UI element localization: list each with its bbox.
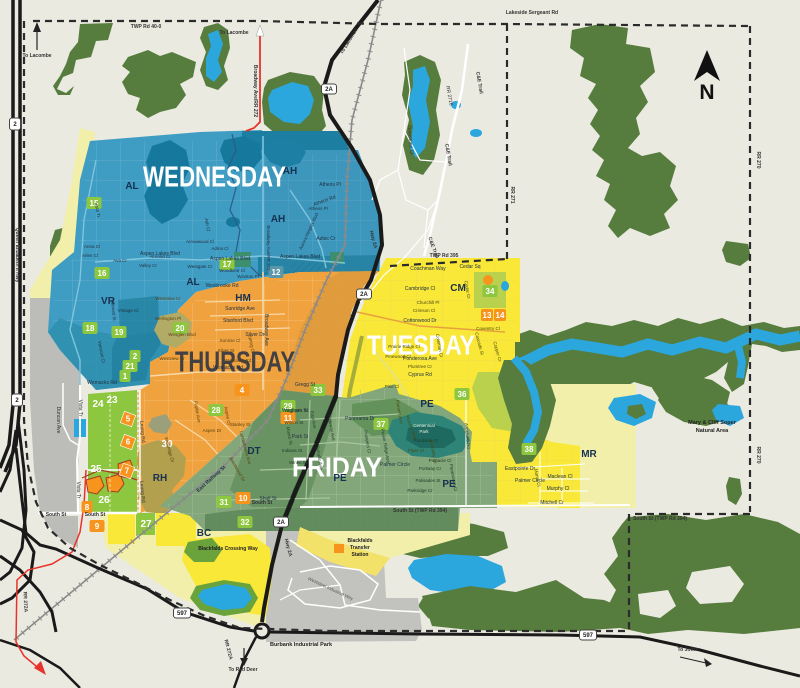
svg-text:RR 272A: RR 272A [21,592,28,613]
svg-text:Churchill Pl: Churchill Pl [417,300,440,305]
svg-text:Maclean Cl: Maclean Cl [547,474,572,480]
svg-text:Centennial: Centennial [413,423,435,428]
svg-text:Pinewood Cl: Pinewood Cl [385,354,410,359]
svg-text:Vista Tr: Vista Tr [77,400,83,417]
svg-text:Valley Cr: Valley Cr [139,263,157,268]
svg-text:Vista Tr: Vista Tr [75,482,81,499]
svg-text:Coventry Cl: Coventry Cl [476,326,500,331]
svg-text:HM: HM [235,293,251,304]
svg-text:Aspen Lakes Blvd: Aspen Lakes Blvd [210,256,250,262]
svg-text:South St (TWP Rd 394): South St (TWP Rd 394) [393,508,447,514]
svg-text:Coachman Way: Coachman Way [410,266,446,272]
svg-text:597: 597 [583,633,594,639]
svg-text:19: 19 [115,328,124,337]
svg-text:18: 18 [86,324,95,333]
svg-text:Crimson Cl: Crimson Cl [413,308,435,313]
svg-text:38: 38 [525,445,534,454]
svg-text:Duncan Ave: Duncan Ave [55,407,61,434]
svg-text:36: 36 [458,390,467,399]
svg-text:24: 24 [92,399,104,410]
svg-text:To Red Deer: To Red Deer [228,667,257,673]
svg-text:Winko St: Winko St [289,460,308,465]
svg-text:Aspen Dr: Aspen Dr [203,428,222,433]
svg-text:Mitchell Cr: Mitchell Cr [540,500,564,506]
svg-text:Womacks Rd: Womacks Rd [213,365,243,371]
svg-text:PE: PE [420,399,434,410]
svg-text:Womacks Rd: Womacks Rd [225,358,252,363]
svg-text:Pinnacle Cl: Pinnacle Cl [429,458,452,463]
svg-text:14: 14 [496,311,505,320]
svg-text:597: 597 [177,611,188,617]
svg-text:Adina Cl: Adina Cl [211,246,228,251]
svg-text:Cottonwood Dr: Cottonwood Dr [403,318,437,324]
svg-text:N: N [699,81,714,104]
svg-text:Parkridge Cr: Parkridge Cr [407,488,433,493]
svg-text:32: 32 [241,518,250,527]
svg-text:Park: Park [419,429,429,434]
svg-text:Wesglen Blvd: Wesglen Blvd [168,332,196,337]
svg-text:RH: RH [153,473,167,484]
svg-text:Plumtree Cr: Plumtree Cr [408,364,433,369]
svg-text:Broadway Ave/RR 272: Broadway Ave/RR 272 [266,225,271,271]
svg-text:28: 28 [212,406,221,415]
svg-text:TWP Rd 40-0: TWP Rd 40-0 [131,24,162,30]
svg-text:Silver St: Silver St [218,348,236,353]
svg-text:34: 34 [486,287,495,296]
svg-text:1: 1 [123,372,128,381]
svg-text:23: 23 [106,395,118,406]
svg-text:South St (TWP Rd 394): South St (TWP Rd 394) [633,516,687,522]
svg-text:Eastpointe Dr: Eastpointe Dr [505,466,536,472]
svg-text:12: 12 [272,268,281,277]
svg-text:Athens Pl: Athens Pl [308,206,327,211]
svg-text:10: 10 [239,494,248,503]
svg-text:16: 16 [98,269,107,278]
svg-text:RR 271: RR 271 [509,187,515,204]
svg-text:5: 5 [126,415,131,424]
svg-text:2A: 2A [360,292,368,298]
svg-text:RR 270: RR 270 [755,447,761,464]
svg-text:6: 6 [126,438,131,447]
svg-text:Aspen Lakes Blvd: Aspen Lakes Blvd [280,254,320,260]
svg-text:8: 8 [85,503,90,512]
svg-text:Prairie Ridge Cl: Prairie Ridge Cl [388,344,420,349]
svg-text:Woodbine Cl: Woodbine Cl [219,268,245,273]
svg-text:Wellington Pl: Wellington Pl [155,316,181,321]
svg-text:PE: PE [333,473,347,484]
svg-text:Queen Elizabeth II Hwy: Queen Elizabeth II Hwy [14,228,20,283]
svg-text:Blackfalds: Blackfalds [347,538,372,544]
svg-text:AH: AH [283,166,297,177]
svg-text:AH: AH [271,214,285,225]
svg-text:Shull St: Shull St [259,496,277,502]
svg-text:Pine Cl: Pine Cl [385,384,400,389]
svg-text:Transfer: Transfer [350,545,370,551]
svg-text:South St: South St [85,512,106,518]
svg-text:2: 2 [133,352,138,361]
svg-text:Sunridge Ave: Sunridge Ave [225,306,255,312]
svg-text:South St: South St [46,512,67,518]
svg-text:Almond Cr: Almond Cr [149,254,171,259]
svg-text:Wilson St: Wilson St [284,420,304,425]
svg-text:4: 4 [240,386,245,395]
svg-text:2A: 2A [277,520,285,526]
svg-text:Park St: Park St [292,434,309,440]
svg-text:Arrowwood Cl: Arrowwood Cl [186,239,214,244]
svg-text:Stanley St: Stanley St [230,422,251,427]
svg-text:Womacks Rd: Womacks Rd [87,380,117,386]
svg-text:MR: MR [581,449,597,460]
svg-text:CM: CM [450,283,466,294]
svg-text:21: 21 [126,362,135,371]
svg-text:Vintage Cl: Vintage Cl [118,308,139,313]
svg-text:Blackfalds Crossing Way: Blackfalds Crossing Way [198,546,258,552]
svg-text:Broadway Ave/RR 272: Broadway Ave/RR 272 [252,65,258,118]
svg-text:Anna Cl: Anna Cl [84,244,100,249]
svg-text:Sunrise Cl: Sunrise Cl [220,338,241,343]
svg-text:Cyprus Rd: Cyprus Rd [408,372,432,378]
svg-text:27: 27 [140,519,152,530]
svg-text:Cambridge Cl: Cambridge Cl [405,286,436,292]
svg-text:Station: Station [352,552,369,558]
svg-text:Wesbrooke Rd: Wesbrooke Rd [206,283,239,289]
svg-text:AL: AL [186,277,199,288]
svg-text:Lakeside Sergeant Rd: Lakeside Sergeant Rd [506,10,558,16]
svg-text:25: 25 [90,464,102,475]
svg-text:Westview Cr: Westview Cr [155,296,181,301]
svg-text:31: 31 [220,498,229,507]
svg-text:9: 9 [95,522,100,531]
svg-text:Stanford Blvd: Stanford Blvd [223,318,253,324]
svg-text:Athens Pl: Athens Pl [319,182,340,188]
svg-text:Gregg St: Gregg St [295,382,316,388]
svg-text:Cedar Sq: Cedar Sq [459,264,480,270]
svg-text:Portway Cr: Portway Cr [419,466,442,471]
svg-text:Westview Cr: Westview Cr [159,356,185,361]
svg-text:Murphy Cl: Murphy Cl [547,486,570,492]
svg-text:7: 7 [125,467,130,476]
svg-text:Broadway Ave: Broadway Ave [263,314,269,346]
svg-text:To Lacombe: To Lacombe [219,30,248,36]
svg-text:Piper Cl: Piper Cl [408,448,424,453]
svg-text:Palisades St: Palisades St [415,478,441,483]
svg-text:Winston Pl: Winston Pl [237,274,259,279]
svg-text:RR 270: RR 270 [755,152,761,169]
svg-text:26: 26 [98,495,110,506]
svg-text:13: 13 [483,311,492,320]
svg-text:Mary & Cliff Soper: Mary & Cliff Soper [688,420,737,426]
svg-text:Arlen Cl: Arlen Cl [82,253,98,258]
svg-text:To Lacombe: To Lacombe [22,53,51,59]
svg-text:Aztec Cr: Aztec Cr [316,236,336,242]
svg-text:Panorama Dr: Panorama Dr [345,416,375,422]
svg-text:To Joffre: To Joffre [677,647,698,653]
svg-text:WEDNESDAY: WEDNESDAY [143,162,286,194]
svg-text:BC: BC [197,528,211,539]
svg-text:AL: AL [125,181,138,192]
svg-text:Natural Area: Natural Area [696,428,729,434]
svg-text:Waghorn St: Waghorn St [284,408,308,413]
svg-text:Indiana St: Indiana St [282,448,303,453]
svg-text:Ava Cr: Ava Cr [113,258,127,263]
svg-text:Westgate Cr: Westgate Cr [188,264,213,269]
svg-text:Palmer Circle: Palmer Circle [380,462,410,468]
svg-text:Burbank Industrial Park: Burbank Industrial Park [270,642,333,648]
svg-text:2A: 2A [325,87,333,93]
